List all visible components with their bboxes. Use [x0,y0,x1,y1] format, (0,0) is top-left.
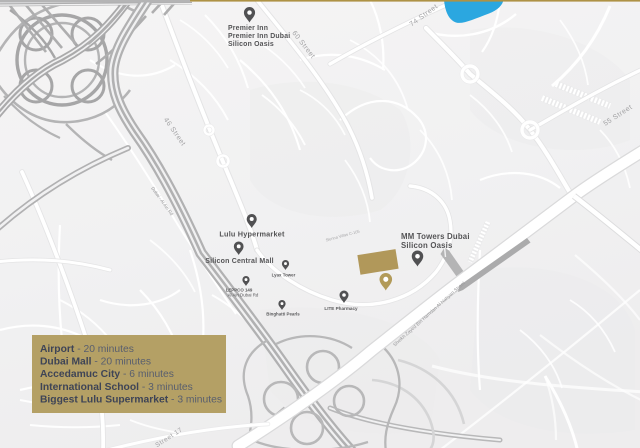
svg-text:Silicon Oasis: Silicon Oasis [401,241,453,250]
svg-text:International School - 3 minut: International School - 3 minutes [40,382,193,393]
svg-text:Silicon Oasis: Silicon Oasis [228,41,274,48]
svg-text:Lyax Tower: Lyax Tower [272,273,296,278]
svg-text:Binghatti Pearls: Binghatti Pearls [266,312,300,317]
svg-text:Silicon Central Mall: Silicon Central Mall [205,258,274,265]
svg-text:Al Ain Dubai Rd: Al Ain Dubai Rd [228,293,259,298]
svg-text:MM Towers Dubai: MM Towers Dubai [401,232,470,241]
svg-text:LITE Pharmacy: LITE Pharmacy [324,306,358,311]
svg-text:Premier Inn: Premier Inn [228,25,268,32]
svg-text:Airport - 20 minutes: Airport - 20 minutes [40,344,134,355]
svg-text:Accedamuc City - 6 minutes: Accedamuc City - 6 minutes [40,369,174,380]
svg-text:Premier Inn Dubai: Premier Inn Dubai [228,33,290,40]
svg-text:Dubai Mall - 20 minutes: Dubai Mall - 20 minutes [40,357,151,368]
svg-text:Biggest Lulu Supermarket - 3 m: Biggest Lulu Supermarket - 3 minutes [40,394,222,405]
svg-text:Lulu Hypermarket: Lulu Hypermarket [219,230,285,239]
